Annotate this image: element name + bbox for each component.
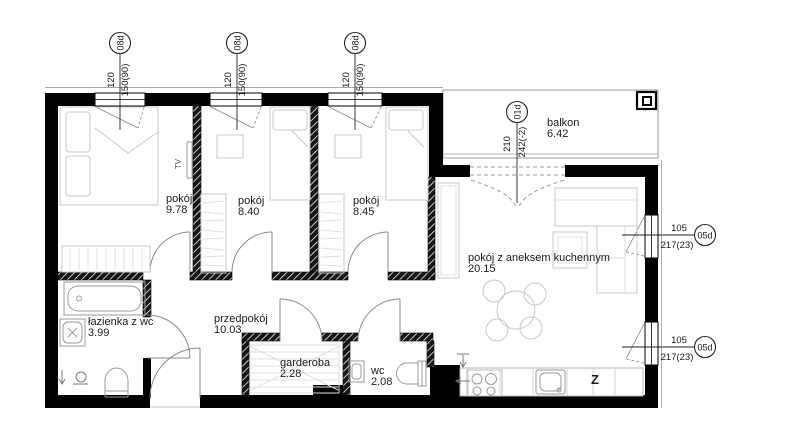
dining-table-icon xyxy=(483,280,546,341)
room-label-living-area: 20.15 xyxy=(468,263,496,275)
window-top-2 xyxy=(210,93,262,128)
dim-top2-height: 150(90) xyxy=(237,64,248,97)
wardrobe-icon xyxy=(201,194,226,273)
balcony-drain-icon xyxy=(637,92,656,109)
tv-label: TV xyxy=(174,158,183,169)
door-balcony xyxy=(470,167,565,207)
dishwasher-label: Z xyxy=(591,372,599,387)
door-pokoj1 xyxy=(150,232,190,272)
kitchen xyxy=(456,354,643,396)
dim-top3-code: 08d xyxy=(351,35,361,50)
room-label-wc-area: 2.08 xyxy=(371,376,392,388)
wc-toilet-icon xyxy=(397,361,427,386)
dim-right2-code: 05d xyxy=(697,343,712,353)
dim-top1-code: 08d xyxy=(116,35,126,50)
room-label-balkon-area: 6.42 xyxy=(547,128,568,140)
room-label-lazienka-area: 3.99 xyxy=(88,327,109,339)
room-label-przedpokoj-area: 10.03 xyxy=(214,324,242,336)
dim-top3-height: 150(90) xyxy=(355,64,366,97)
dim-right2-height: 217(23) xyxy=(661,352,694,363)
dim-balcony-width: 210 xyxy=(502,136,513,152)
door-entrance xyxy=(150,348,200,407)
bathtub-icon xyxy=(64,282,145,315)
sofa-icon xyxy=(553,188,637,293)
cabinet-icon xyxy=(438,183,459,278)
dim-right1-height: 217(23) xyxy=(661,240,694,251)
dim-top3-width: 120 xyxy=(341,72,352,88)
desk-icon xyxy=(335,135,361,158)
tv-icon xyxy=(187,142,192,178)
bed-single-icon xyxy=(386,107,428,200)
wardrobe-icon xyxy=(319,194,344,273)
dim-top1-height: 150(90) xyxy=(120,64,131,97)
dim-right1-width: 105 xyxy=(671,223,687,234)
room-label-pokoj1-area: 9.78 xyxy=(166,204,187,216)
door-bathroom xyxy=(147,315,190,358)
bed-single-icon xyxy=(270,107,310,200)
floor-plan: 120 150(90) 08d 120 150(90) 08d 120 150(… xyxy=(0,0,800,440)
room-label-garderoba-area: 2.28 xyxy=(280,368,301,380)
door-wc xyxy=(358,299,400,341)
dim-balcony-height: 242(-2) xyxy=(517,127,528,158)
toilet-icon xyxy=(105,368,128,397)
desk-icon xyxy=(217,135,243,158)
room-label-pokoj3-area: 8.45 xyxy=(353,206,374,218)
door-garderoba xyxy=(280,299,322,341)
bed-double-icon xyxy=(60,107,158,205)
floor-plan-page: 120 150(90) 08d 120 150(90) 08d 120 150(… xyxy=(0,0,800,440)
dim-top1-width: 120 xyxy=(106,72,117,88)
room-label-pokoj2-area: 8.40 xyxy=(238,206,259,218)
dim-right1-code: 05d xyxy=(697,231,712,241)
dim-right2-width: 105 xyxy=(671,335,687,346)
dim-top2-width: 120 xyxy=(223,72,234,88)
wardrobe-icon xyxy=(62,246,150,272)
washbasin-icon xyxy=(60,319,85,346)
washer-drain-icon xyxy=(59,370,88,384)
dim-balcony-code: 01d xyxy=(513,104,523,119)
window-right-2 xyxy=(626,322,658,365)
dim-top2-code: 08d xyxy=(233,35,243,50)
door-pokoj2 xyxy=(232,232,272,272)
window-right-1 xyxy=(626,215,658,258)
wc-washbasin-icon xyxy=(349,361,364,382)
door-pokoj3 xyxy=(348,232,388,272)
